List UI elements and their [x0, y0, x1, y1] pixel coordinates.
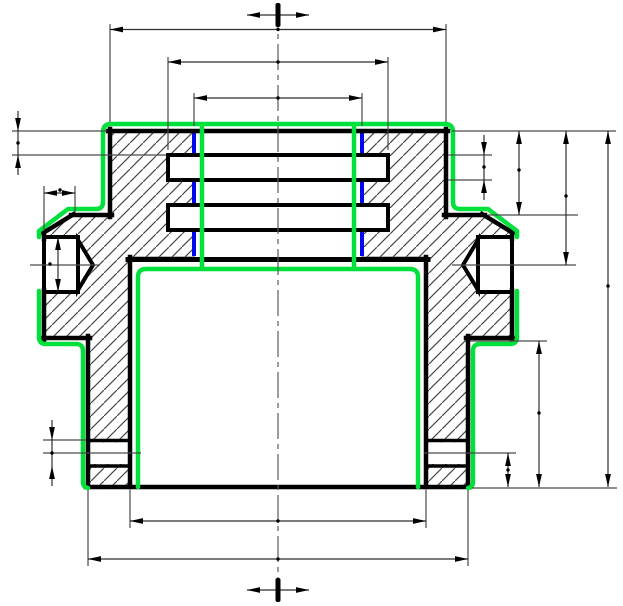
datum-mark-bottom-arrow-left [247, 587, 260, 593]
dim-overall-height-dot [606, 284, 609, 287]
dim-overall-height-arrow-2 [605, 474, 611, 487]
dim-overall-height-arrow-1 [605, 131, 611, 144]
dim-ring-groove-dia-arrow-2 [375, 59, 388, 65]
dim-port-dia-dot [48, 262, 51, 265]
datum-mark-top-arrow-left [247, 12, 260, 18]
datum-mark-top-tick [276, 3, 281, 27]
dim-top-to-step-dot [517, 168, 520, 171]
dim-shoulder-to-bottom-arrow-1 [536, 341, 542, 354]
dim-top-to-step-arrow-2 [516, 202, 522, 215]
dim-groove-to-bottom-arrow-1 [505, 453, 511, 466]
dim-bore-dia-arrow-2 [349, 95, 362, 101]
dim-ring-width-arrow-2 [481, 180, 487, 193]
dim-bore-dia-dot [276, 96, 279, 99]
dim-skirt-outer-dia-arrow-2 [455, 556, 468, 562]
dim-groove-width-dot [50, 451, 53, 454]
dim-top-to-port-axis-arrow-2 [563, 252, 569, 265]
dim-top-to-ring-dot [16, 141, 19, 144]
dim-cavity-dia-dot [276, 519, 279, 522]
section-hatch-left [44, 131, 194, 487]
dim-top-to-ring-arrow-2 [15, 155, 21, 168]
section-hatch-right [362, 131, 512, 487]
dim-top-to-port-axis-dot [564, 194, 567, 197]
datum-mark-bottom-tick [276, 578, 281, 602]
dim-cavity-dia-arrow-1 [130, 518, 143, 524]
dim-overall-width-arrow-2 [433, 27, 446, 33]
dim-skirt-outer-dia-dot [276, 557, 279, 560]
dim-ring-width-dot [482, 165, 485, 168]
dim-overall-width-arrow-1 [110, 27, 123, 33]
dim-cavity-dia-arrow-2 [413, 518, 426, 524]
datum-mark-bottom-arrow-right [296, 587, 309, 593]
dim-top-to-ring-arrow-1 [15, 118, 21, 131]
dim-ring-groove-dia-dot [276, 60, 279, 63]
dim-chamfer-width-arrow-2 [62, 190, 75, 196]
dim-chamfer-width-arrow-1 [44, 190, 57, 196]
dim-shoulder-to-bottom-dot [537, 411, 540, 414]
dim-ring-groove-dia-arrow-1 [168, 59, 181, 65]
dim-top-to-step-arrow-1 [516, 131, 522, 144]
dim-overall-width-dot [276, 28, 279, 31]
cad-drawing-viewport[interactable] [0, 0, 623, 606]
dim-top-to-port-axis-arrow-1 [563, 131, 569, 144]
dim-shoulder-to-bottom-arrow-2 [536, 474, 542, 487]
section-drawing [0, 0, 623, 606]
dim-groove-width-arrow-1 [49, 427, 55, 440]
dim-groove-to-bottom-arrow-2 [505, 474, 511, 487]
datum-mark-top-arrow-right [296, 12, 309, 18]
dim-skirt-outer-dia-arrow-1 [88, 556, 101, 562]
dim-ring-width-arrow-1 [481, 142, 487, 155]
dim-groove-width-arrow-2 [49, 466, 55, 479]
dim-chamfer-width-dot [58, 188, 61, 191]
dim-groove-to-bottom-dot [506, 468, 509, 471]
dim-bore-dia-arrow-1 [194, 95, 207, 101]
